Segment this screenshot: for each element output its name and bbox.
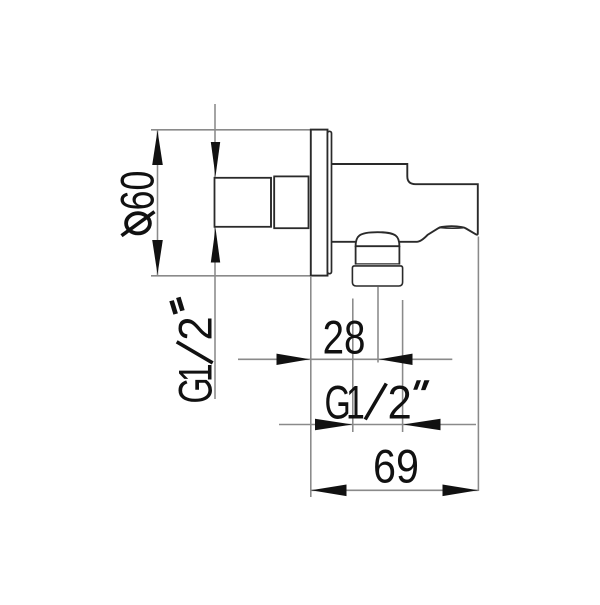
svg-text:1: 1 — [169, 363, 222, 382]
svg-text:1: 1 — [346, 376, 365, 429]
svg-text:60: 60 — [111, 171, 164, 211]
svg-text:69: 69 — [373, 441, 419, 493]
svg-text:2: 2 — [169, 316, 222, 340]
svg-text:2: 2 — [388, 376, 412, 429]
svg-text:28: 28 — [323, 312, 366, 364]
